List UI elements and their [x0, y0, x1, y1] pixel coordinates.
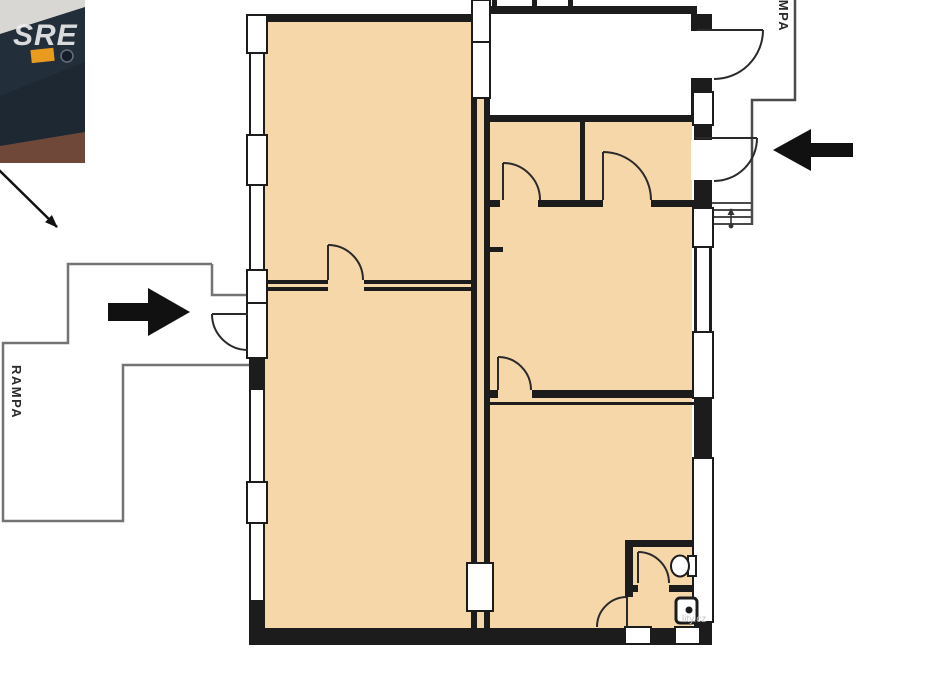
rooms [265, 14, 692, 628]
porch-wall-stub [568, 0, 573, 13]
right-ramp-outline [752, 0, 795, 225]
wall-stub [484, 247, 503, 252]
floor-plan: RAMPA RAMPA lity.cz [0, 0, 940, 684]
interior-wall [484, 200, 500, 207]
porch-wall-stub [492, 0, 497, 14]
interior-wall-thin [490, 402, 697, 405]
bathroom-wall [633, 585, 638, 592]
left-entrance-arrow-icon [108, 288, 190, 336]
window-narrow [696, 247, 710, 332]
interior-wall [265, 280, 328, 284]
site-watermark-fragment: lity.cz [682, 614, 706, 625]
bathroom-wall [625, 540, 697, 547]
window [693, 92, 713, 125]
entrance-door-threshold [247, 303, 267, 358]
interior-wall [265, 287, 328, 291]
right-stairs [712, 203, 752, 224]
door-opening [691, 140, 715, 180]
window [625, 627, 651, 644]
interior-wall [364, 280, 477, 284]
toilet-bowl-icon [671, 556, 689, 577]
right-entrance-arrow-icon [773, 129, 853, 171]
window [472, 42, 490, 98]
entrance-hall-room [490, 14, 692, 115]
interior-wall [364, 287, 477, 291]
ramp-label-right: RAMPA [776, 0, 791, 32]
wall-segment [250, 14, 490, 22]
interior-wall [484, 98, 490, 628]
sink-drain-icon [686, 607, 693, 614]
bathroom-wall [625, 540, 633, 597]
left-ramp-outline [3, 264, 250, 521]
interior-wall [490, 390, 498, 398]
door-opening [691, 31, 715, 78]
stairs-arrow-origin-dot [729, 224, 734, 229]
wall-segment [490, 6, 697, 14]
interior-wall [532, 390, 697, 398]
window [247, 135, 267, 185]
interior-wall [471, 22, 477, 628]
door-left-entrance [212, 314, 248, 350]
interior-door-opening [467, 563, 493, 611]
window [675, 627, 700, 644]
interior-wall [580, 122, 585, 200]
interior-wall [484, 115, 697, 122]
floorplan-image: SRE [0, 0, 940, 684]
left-ramp-step [212, 264, 248, 295]
window [247, 482, 267, 523]
window [472, 0, 490, 42]
photo-pointer-arrow-icon [0, 168, 57, 227]
window [247, 270, 267, 303]
interior-wall [538, 200, 603, 207]
porch-wall-stub [532, 0, 537, 9]
window [693, 208, 713, 247]
interior-wall [651, 200, 697, 207]
wall-segment [249, 358, 265, 390]
window [247, 15, 267, 53]
ramp-label-left: RAMPA [9, 365, 24, 419]
window [693, 332, 713, 398]
